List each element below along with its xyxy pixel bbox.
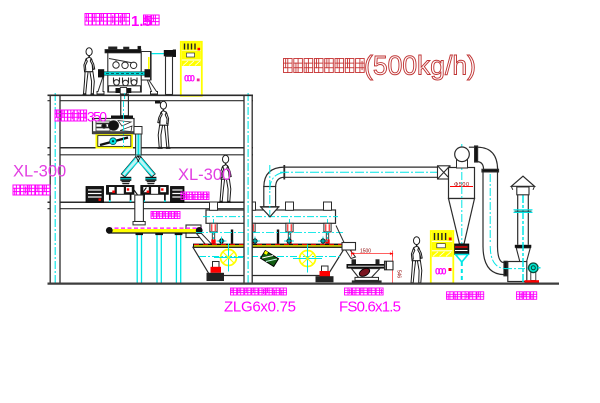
svg-text:(500kg/h): (500kg/h) <box>364 51 476 81</box>
svg-text:XL-300: XL-300 <box>13 163 66 181</box>
svg-text:350: 350 <box>87 109 107 125</box>
svg-text:000: 000 <box>435 267 447 277</box>
svg-text:546: 546 <box>396 270 402 278</box>
svg-text:FS0.6x1.5: FS0.6x1.5 <box>339 299 401 316</box>
svg-text:1500: 1500 <box>360 249 371 255</box>
svg-text:ZLG6x0.75: ZLG6x0.75 <box>224 299 296 316</box>
svg-text:000: 000 <box>184 74 195 84</box>
svg-text:XL-300: XL-300 <box>178 166 231 184</box>
